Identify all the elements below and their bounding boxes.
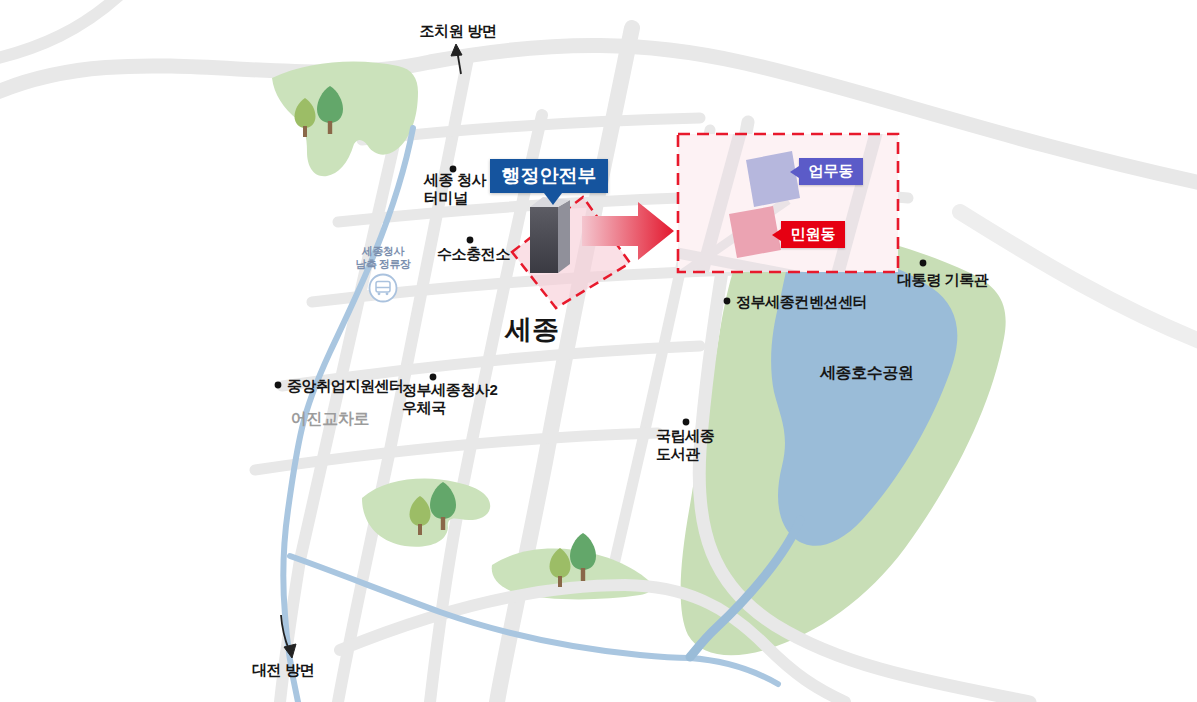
ministry-building-3d bbox=[530, 197, 570, 273]
employment-dot bbox=[275, 382, 282, 389]
north-direction-label: 조치원 방면 bbox=[413, 22, 503, 40]
poi-employment-label: 중앙취업지원센터 bbox=[287, 377, 404, 395]
bus-stop-icon bbox=[370, 275, 397, 302]
poi-postoffice-line2: 우체국 bbox=[402, 399, 498, 417]
poi-postoffice-line1: 정부세종청사2 bbox=[402, 381, 498, 399]
intersection-label: 어진교차로 bbox=[291, 409, 369, 429]
road-horizontal-5 bbox=[255, 433, 658, 470]
hydrogen-dot bbox=[467, 237, 474, 244]
poi-convention-label: 정부세종컨벤션센터 bbox=[736, 293, 867, 311]
ministry-callout: 행정안전부 bbox=[490, 159, 608, 193]
poi-terminal-line1: 세종 청사 bbox=[424, 171, 486, 189]
poi-terminal-label: 세종 청사 터미널 bbox=[424, 171, 486, 208]
poi-hydrogen-label: 수소충전소 bbox=[437, 245, 510, 263]
bus-stop-line2: 남측 정류장 bbox=[341, 258, 425, 271]
sejong-location-map: 조치원 방면 세종 청사 터미널 행정안전부 세종청사 남측 정류장 수소충전소… bbox=[0, 0, 1197, 702]
map-graphics bbox=[0, 0, 1197, 702]
poi-postoffice-label: 정부세종청사2 우체국 bbox=[402, 381, 498, 418]
archives-dot bbox=[920, 260, 927, 267]
postoffice-dot bbox=[430, 374, 437, 381]
library-dot bbox=[683, 419, 690, 426]
poi-library-line1: 국립세종 bbox=[656, 427, 714, 445]
poi-terminal-line2: 터미널 bbox=[424, 189, 486, 207]
road-topleft-corner bbox=[0, 0, 125, 62]
poi-library-line2: 도서관 bbox=[656, 445, 714, 463]
bus-stop-line1: 세종청사 bbox=[341, 245, 425, 258]
lake-park-label: 세종호수공원 bbox=[820, 363, 914, 383]
office-building-callout: 업무동 bbox=[799, 158, 863, 185]
poi-archives-label: 대통령 기록관 bbox=[897, 271, 988, 289]
convention-dot bbox=[724, 298, 731, 305]
city-label: 세종 bbox=[505, 314, 559, 347]
poi-library-label: 국립세종 도서관 bbox=[656, 427, 714, 464]
south-direction-label: 대전 방면 bbox=[252, 661, 314, 679]
office-building-shape bbox=[746, 151, 800, 207]
civil-building-callout: 민원동 bbox=[781, 221, 845, 248]
bus-stop-label: 세종청사 남측 정류장 bbox=[341, 245, 425, 272]
highlight-area-dashed bbox=[512, 197, 630, 308]
